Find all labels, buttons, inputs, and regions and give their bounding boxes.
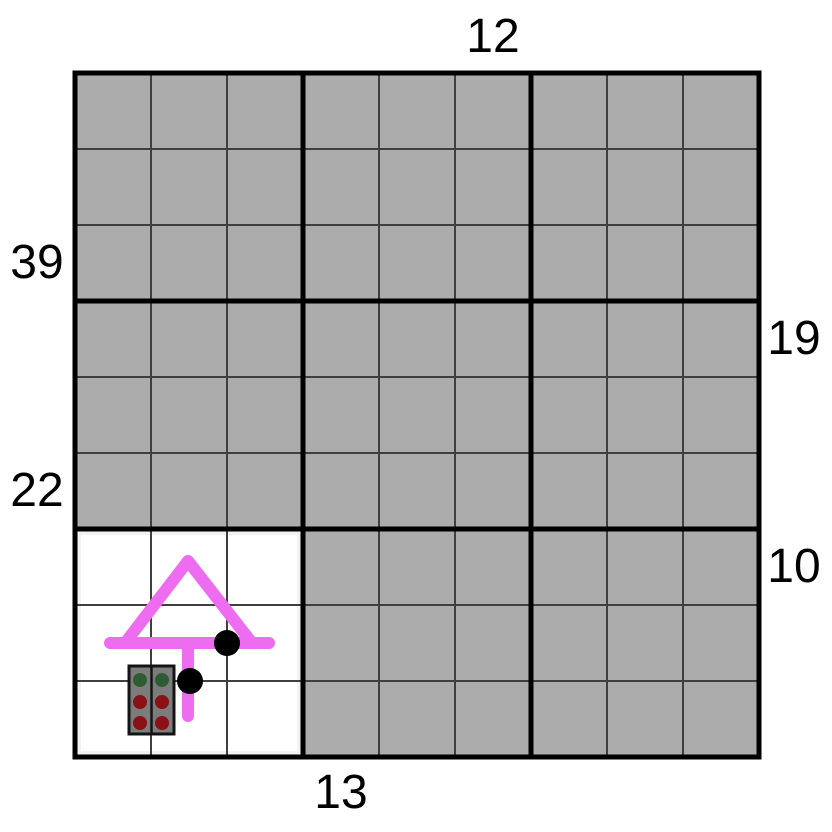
cell-r2c1[interactable] [75, 149, 151, 225]
cell-r3c2[interactable] [151, 225, 227, 301]
cell-r6c3[interactable] [227, 453, 303, 529]
cell-r6c9[interactable] [683, 453, 759, 529]
cell-r8c9[interactable] [683, 605, 759, 681]
clue-right-row4: 19 [767, 315, 820, 363]
cell-r7c8[interactable] [607, 529, 683, 605]
cell-r8c6[interactable] [455, 605, 531, 681]
cell-r2c4[interactable] [303, 149, 379, 225]
cell-r4c8[interactable] [607, 301, 683, 377]
cell-r5c6[interactable] [455, 377, 531, 453]
cell-r1c7[interactable] [531, 73, 607, 149]
cell-r7c1[interactable] [75, 529, 151, 605]
cell-r7c3[interactable] [227, 529, 303, 605]
cell-r7c5[interactable] [379, 529, 455, 605]
cell-r7c4[interactable] [303, 529, 379, 605]
puzzle-board-stage: 12 13 39 22 19 10 [0, 0, 832, 832]
cell-r8c7[interactable] [531, 605, 607, 681]
cell-r4c7[interactable] [531, 301, 607, 377]
cell-r5c8[interactable] [607, 377, 683, 453]
cell-r4c6[interactable] [455, 301, 531, 377]
cell-r1c8[interactable] [607, 73, 683, 149]
pip-red [155, 695, 169, 709]
cell-r1c3[interactable] [227, 73, 303, 149]
pip-green [155, 673, 169, 687]
cell-r7c9[interactable] [683, 529, 759, 605]
pip-red [133, 716, 147, 730]
cell-r5c4[interactable] [303, 377, 379, 453]
cell-r2c7[interactable] [531, 149, 607, 225]
cell-r1c6[interactable] [455, 73, 531, 149]
black-dot-token[interactable] [177, 668, 203, 694]
cell-r2c6[interactable] [455, 149, 531, 225]
pip-red [155, 716, 169, 730]
clue-right-row7: 10 [767, 543, 820, 591]
cell-r5c1[interactable] [75, 377, 151, 453]
pip-red [133, 695, 147, 709]
cell-r8c4[interactable] [303, 605, 379, 681]
cell-r9c7[interactable] [531, 681, 607, 757]
cell-r4c5[interactable] [379, 301, 455, 377]
cell-r6c8[interactable] [607, 453, 683, 529]
clue-top-col6: 12 [466, 13, 519, 61]
cell-r4c3[interactable] [227, 301, 303, 377]
cell-r3c3[interactable] [227, 225, 303, 301]
cell-r9c9[interactable] [683, 681, 759, 757]
cell-r3c8[interactable] [607, 225, 683, 301]
cell-r3c9[interactable] [683, 225, 759, 301]
cell-r2c8[interactable] [607, 149, 683, 225]
cell-r8c5[interactable] [379, 605, 455, 681]
clue-left-row3: 39 [10, 239, 63, 287]
cell-r6c7[interactable] [531, 453, 607, 529]
cell-r1c2[interactable] [151, 73, 227, 149]
cell-r5c9[interactable] [683, 377, 759, 453]
cell-r7c7[interactable] [531, 529, 607, 605]
cell-r8c8[interactable] [607, 605, 683, 681]
cell-r6c5[interactable] [379, 453, 455, 529]
cell-r4c4[interactable] [303, 301, 379, 377]
cell-r9c5[interactable] [379, 681, 455, 757]
cell-r4c2[interactable] [151, 301, 227, 377]
cell-r9c4[interactable] [303, 681, 379, 757]
cell-r9c3[interactable] [227, 681, 303, 757]
cell-r6c2[interactable] [151, 453, 227, 529]
cell-r5c7[interactable] [531, 377, 607, 453]
pip-panel[interactable] [129, 666, 174, 734]
cell-r2c9[interactable] [683, 149, 759, 225]
cell-r2c3[interactable] [227, 149, 303, 225]
cell-r2c2[interactable] [151, 149, 227, 225]
clue-left-row6: 22 [10, 467, 63, 515]
cell-r1c4[interactable] [303, 73, 379, 149]
cell-r1c1[interactable] [75, 73, 151, 149]
cell-r7c6[interactable] [455, 529, 531, 605]
cell-r1c5[interactable] [379, 73, 455, 149]
cell-r9c6[interactable] [455, 681, 531, 757]
black-dot-token[interactable] [214, 630, 240, 656]
cell-r4c9[interactable] [683, 301, 759, 377]
clue-bottom-col4: 13 [314, 769, 367, 817]
cell-r5c2[interactable] [151, 377, 227, 453]
cell-r5c5[interactable] [379, 377, 455, 453]
cell-r2c5[interactable] [379, 149, 455, 225]
puzzle-grid[interactable] [0, 0, 832, 832]
cell-r3c6[interactable] [455, 225, 531, 301]
cell-r5c3[interactable] [227, 377, 303, 453]
cell-r4c1[interactable] [75, 301, 151, 377]
cell-r1c9[interactable] [683, 73, 759, 149]
cell-r6c1[interactable] [75, 453, 151, 529]
cell-r3c4[interactable] [303, 225, 379, 301]
cell-r6c6[interactable] [455, 453, 531, 529]
cell-r3c1[interactable] [75, 225, 151, 301]
cell-r3c7[interactable] [531, 225, 607, 301]
cell-r6c4[interactable] [303, 453, 379, 529]
cell-r3c5[interactable] [379, 225, 455, 301]
pip-green [133, 673, 147, 687]
cell-r9c8[interactable] [607, 681, 683, 757]
